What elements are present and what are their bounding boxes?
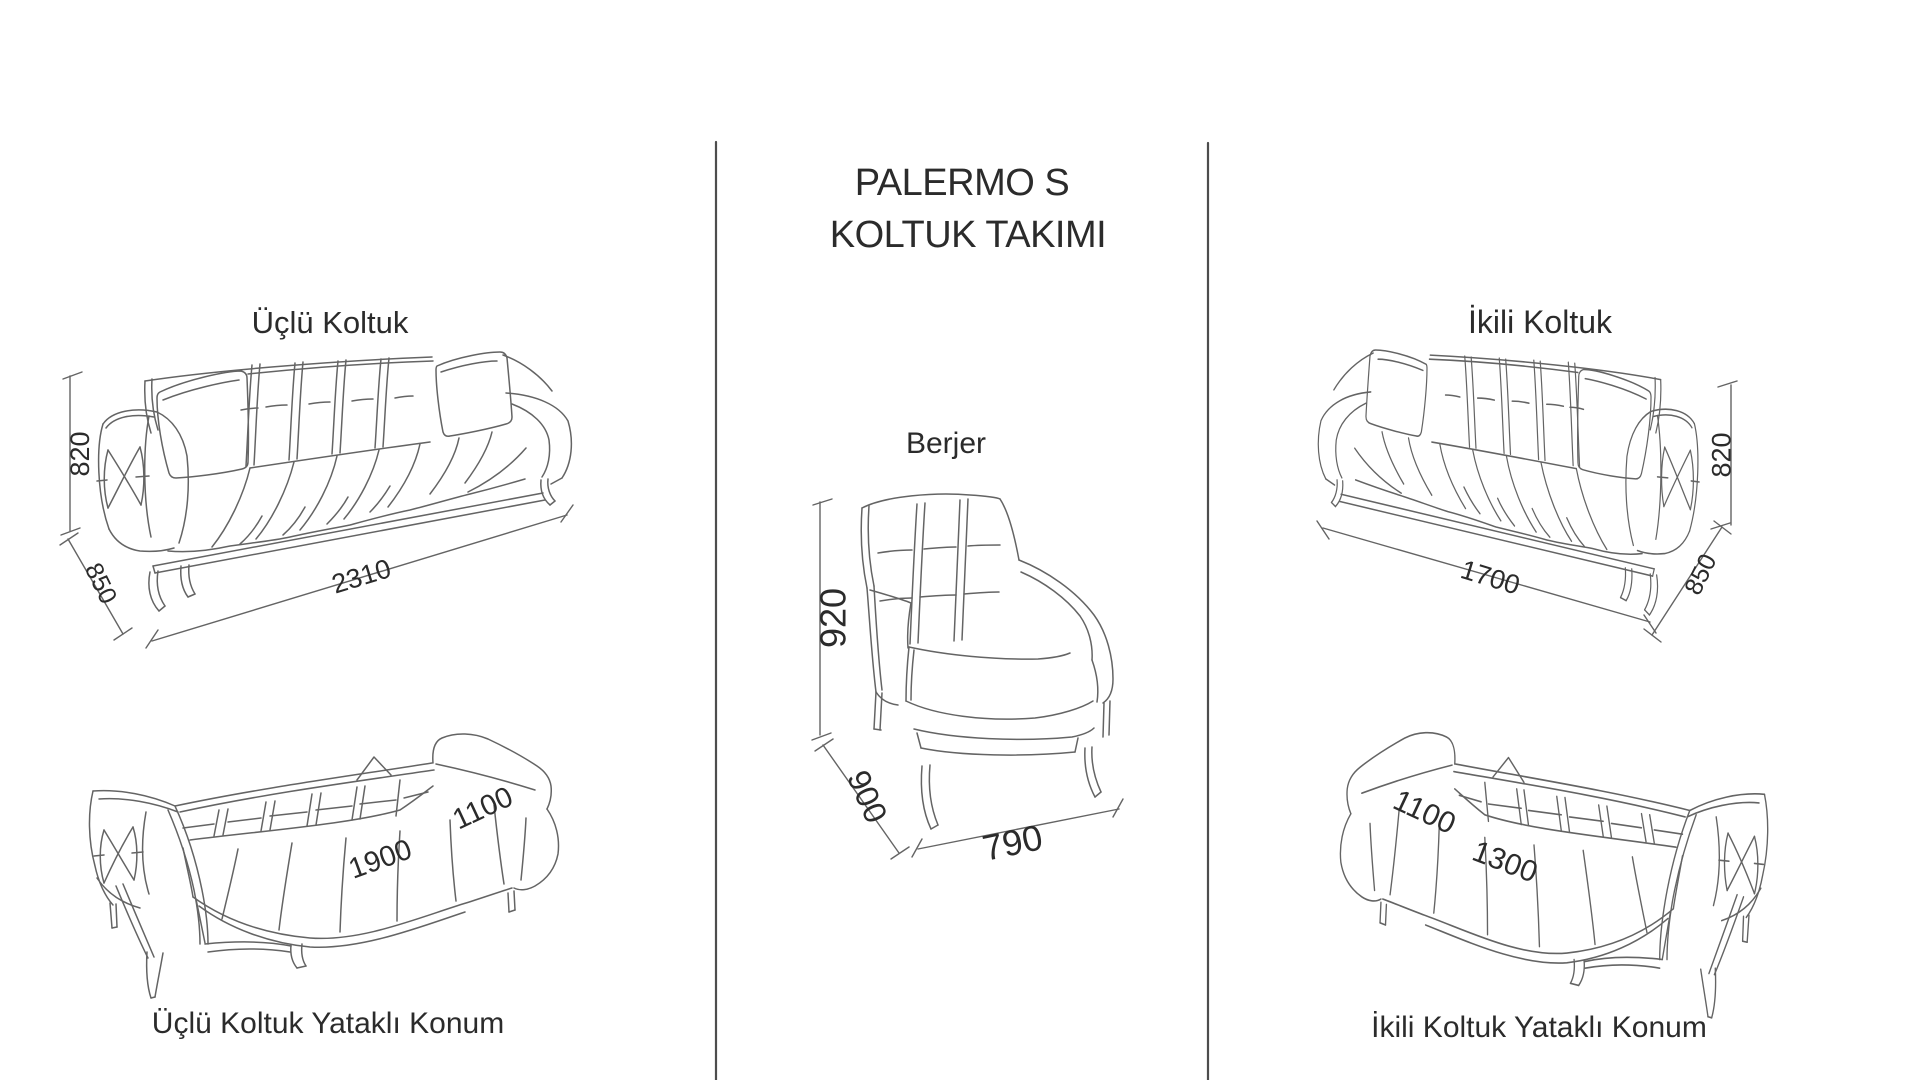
- svg-text:Berjer: Berjer: [906, 427, 986, 460]
- svg-text:PALERMO S: PALERMO S: [855, 162, 1069, 204]
- svg-text:İkili Koltuk: İkili Koltuk: [1468, 304, 1613, 340]
- svg-text:Üçlü Koltuk: Üçlü Koltuk: [252, 305, 409, 340]
- svg-text:İkili Koltuk Yataklı Konum: İkili Koltuk Yataklı Konum: [1371, 1011, 1707, 1044]
- svg-text:KOLTUK TAKIMI: KOLTUK TAKIMI: [830, 214, 1106, 256]
- svg-text:820: 820: [1707, 432, 1737, 477]
- svg-text:820: 820: [65, 431, 95, 476]
- svg-text:Üçlü Koltuk Yataklı Konum: Üçlü Koltuk Yataklı Konum: [152, 1007, 504, 1040]
- svg-text:920: 920: [813, 588, 854, 648]
